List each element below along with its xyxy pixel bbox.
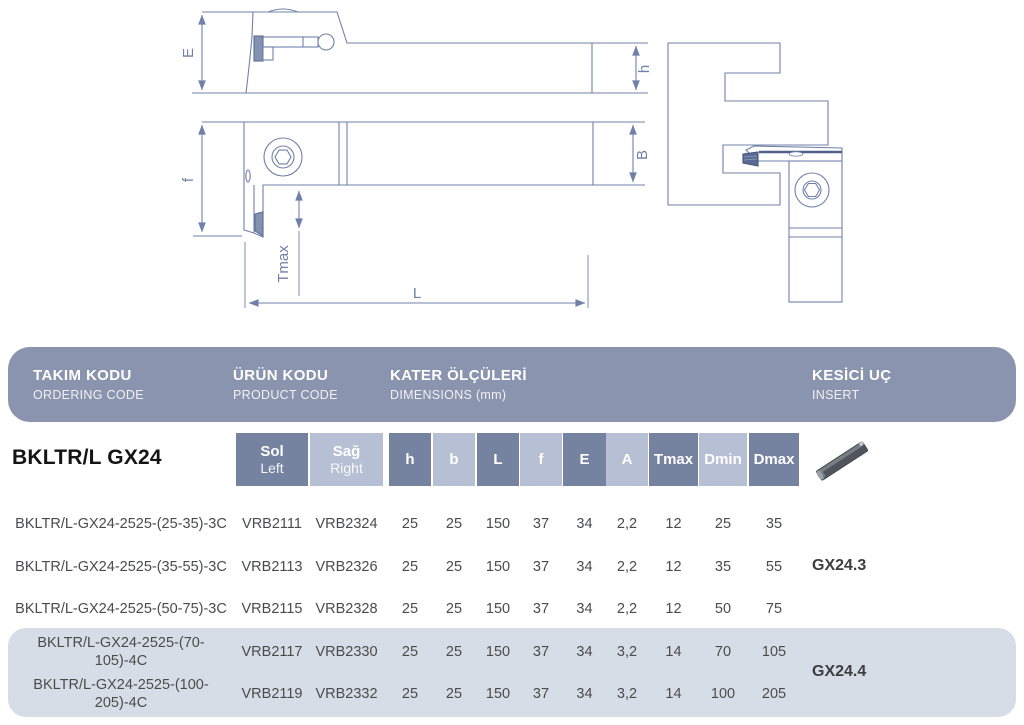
cell-ordering-code: BKLTR/L-GX24-2525-(25-35)-3C	[12, 515, 230, 533]
cell-E: 34	[563, 558, 606, 576]
cell-h: 25	[389, 558, 431, 576]
technical-drawings: E h f B Tmax L	[0, 0, 1024, 340]
cell-E: 34	[563, 643, 606, 661]
cell-h: 25	[389, 600, 431, 618]
cell-ordering-code: BKLTR/L-GX24-2525-(50-75)-3C	[12, 600, 230, 618]
col-header-sag: Sağ	[333, 443, 361, 460]
cell-Tmax: 12	[649, 515, 698, 533]
cell-b: 25	[433, 558, 475, 576]
cell-Tmax: 12	[649, 558, 698, 576]
header-subtitle: PRODUCT CODE	[233, 388, 338, 402]
col-header-A: A	[606, 433, 648, 486]
col-header-left: Left	[260, 460, 283, 476]
cell-f: 37	[520, 515, 562, 533]
header-title: KESİCİ UÇ	[812, 367, 891, 384]
col-header-E: E	[563, 433, 606, 486]
cell-E: 34	[563, 600, 606, 618]
cell-ordering-code: BKLTR/L-GX24-2525-(35-55)-3C	[12, 558, 230, 576]
cell-f: 37	[520, 685, 562, 703]
cell-E: 34	[563, 685, 606, 703]
cell-right-code: VRB2332	[310, 685, 383, 703]
dim-label-h: h	[636, 65, 653, 73]
cell-h: 25	[389, 515, 431, 533]
cell-Tmax: 14	[649, 685, 698, 703]
table-row: BKLTR/L-GX24-2525-(25-35)-3C VRB2111 VRB…	[0, 503, 1024, 545]
cell-f: 37	[520, 558, 562, 576]
col-header-h: h	[389, 433, 431, 486]
cell-E: 34	[563, 515, 606, 533]
col-header-Tmax: Tmax	[649, 433, 698, 486]
series-title: BKLTR/L GX24	[12, 446, 162, 470]
cell-left-code: VRB2117	[236, 643, 308, 661]
cell-h: 25	[389, 643, 431, 661]
cell-L: 150	[477, 643, 519, 661]
cell-Dmin: 50	[699, 600, 747, 618]
cell-Dmin: 35	[699, 558, 747, 576]
cell-left-code: VRB2115	[236, 600, 308, 618]
header-subtitle: ORDERING CODE	[33, 388, 144, 402]
cell-b: 25	[433, 515, 475, 533]
dim-label-E: E	[180, 48, 197, 58]
dim-label-B: B	[634, 150, 651, 160]
cell-A: 2,2	[606, 515, 648, 533]
cell-Tmax: 14	[649, 643, 698, 661]
table-header-band: TAKIM KODU ORDERING CODE ÜRÜN KODU PRODU…	[8, 347, 1016, 422]
col-header-right: Right	[330, 460, 363, 476]
cell-Dmin: 25	[699, 515, 747, 533]
cell-b: 25	[433, 643, 475, 661]
cell-b: 25	[433, 600, 475, 618]
table-row: BKLTR/L-GX24-2525-(50-75)-3C VRB2115 VRB…	[0, 588, 1024, 630]
cell-Dmax: 105	[749, 643, 799, 661]
cell-left-code: VRB2113	[236, 558, 308, 576]
side-view-drawing	[246, 9, 592, 93]
table-row: BKLTR/L-GX24-2525-(70-105)-4C VRB2117 VR…	[0, 631, 1024, 673]
col-header-sag-right: Sağ Right	[310, 433, 383, 486]
col-header-b: b	[433, 433, 475, 486]
cell-L: 150	[477, 515, 519, 533]
col-header-sol: Sol	[260, 443, 283, 460]
dim-label-Tmax: Tmax	[275, 245, 292, 283]
cell-Dmax: 35	[749, 515, 799, 533]
cell-L: 150	[477, 685, 519, 703]
cell-Dmin: 70	[699, 643, 747, 661]
cell-Tmax: 12	[649, 600, 698, 618]
cell-ordering-code: BKLTR/L-GX24-2525-(100-205)-4C	[12, 676, 230, 712]
col-header-L: L	[477, 433, 519, 486]
cell-right-code: VRB2330	[310, 643, 383, 661]
header-title: KATER ÖLÇÜLERİ	[390, 367, 527, 384]
col-header-f: f	[520, 433, 562, 486]
cell-Dmax: 205	[749, 685, 799, 703]
cell-L: 150	[477, 600, 519, 618]
table-row: BKLTR/L-GX24-2525-(100-205)-4C VRB2119 V…	[0, 669, 1024, 719]
cell-Dmax: 55	[749, 558, 799, 576]
header-title: ÜRÜN KODU	[233, 367, 328, 384]
cell-h: 25	[389, 685, 431, 703]
col-header-Dmin: Dmin	[699, 433, 747, 486]
insert-group-label: GX24.3	[812, 557, 866, 575]
dim-label-f: f	[180, 177, 197, 182]
col-header-Dmax: Dmax	[749, 433, 799, 486]
cell-f: 37	[520, 643, 562, 661]
cell-Dmax: 75	[749, 600, 799, 618]
cutting-insert-icon	[810, 434, 882, 486]
top-view-drawing	[244, 122, 593, 237]
cell-A: 2,2	[606, 558, 648, 576]
catalog-page: E h f B Tmax L TAKIM KODU ORDERING CODE …	[0, 0, 1024, 725]
cell-left-code: VRB2119	[236, 685, 308, 703]
cell-right-code: VRB2328	[310, 600, 383, 618]
table-row: BKLTR/L-GX24-2525-(35-55)-3C VRB2113 VRB…	[0, 546, 1024, 588]
cell-left-code: VRB2111	[236, 515, 308, 533]
cell-ordering-code: BKLTR/L-GX24-2525-(70-105)-4C	[12, 634, 230, 670]
front-view-drawing	[668, 43, 842, 302]
insert-group-label: GX24.4	[812, 663, 866, 681]
cell-Dmin: 100	[699, 685, 747, 703]
cell-right-code: VRB2326	[310, 558, 383, 576]
cell-L: 150	[477, 558, 519, 576]
dim-label-L: L	[413, 285, 421, 302]
col-header-sol-left: Sol Left	[236, 433, 308, 486]
cell-A: 3,2	[606, 685, 648, 703]
cell-f: 37	[520, 600, 562, 618]
cell-A: 3,2	[606, 643, 648, 661]
cell-A: 2,2	[606, 600, 648, 618]
cell-b: 25	[433, 685, 475, 703]
header-title: TAKIM KODU	[33, 367, 132, 384]
header-subtitle: INSERT	[812, 388, 859, 402]
cell-right-code: VRB2324	[310, 515, 383, 533]
header-subtitle: DIMENSIONS (mm)	[390, 388, 506, 402]
